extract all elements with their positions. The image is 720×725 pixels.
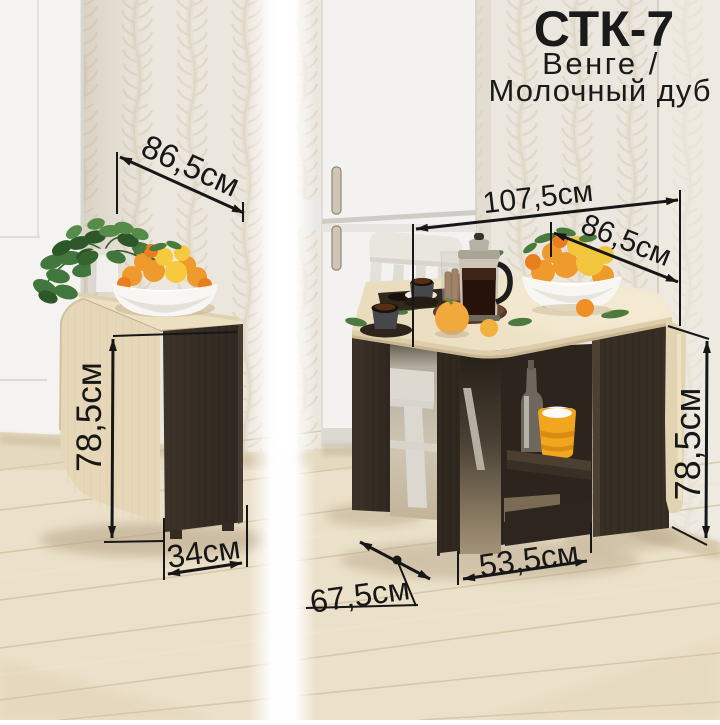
svg-text:78,5см: 78,5см: [667, 388, 708, 501]
svg-text:78,5см: 78,5см: [70, 362, 109, 472]
svg-text:Молочный дуб: Молочный дуб: [489, 73, 712, 108]
